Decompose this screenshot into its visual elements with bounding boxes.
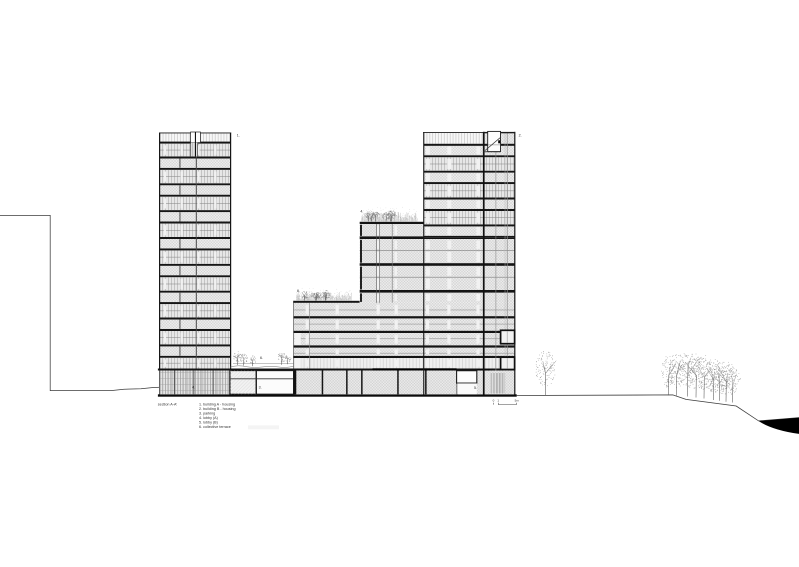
svg-text:6.: 6. — [260, 356, 263, 360]
svg-text:1. building A - housing: 1. building A - housing — [199, 402, 235, 406]
svg-text:2.: 2. — [519, 133, 522, 137]
svg-text:4.: 4. — [192, 385, 195, 389]
svg-text:4.: 4. — [360, 209, 363, 213]
svg-text:5.: 5. — [474, 386, 477, 390]
svg-text:5. lobby (B): 5. lobby (B) — [199, 420, 218, 424]
svg-text:1.: 1. — [237, 134, 240, 138]
svg-text:4. lobby (A): 4. lobby (A) — [199, 416, 218, 420]
svg-text:6. collective terrace: 6. collective terrace — [199, 425, 231, 429]
svg-text:5m: 5m — [515, 399, 520, 403]
svg-text:3. parking: 3. parking — [199, 411, 215, 415]
svg-text:2. building B - housing: 2. building B - housing — [199, 407, 236, 411]
svg-text:section A-A’: section A-A’ — [158, 402, 177, 406]
svg-text:6.: 6. — [297, 289, 300, 293]
svg-text:3.: 3. — [259, 385, 262, 389]
